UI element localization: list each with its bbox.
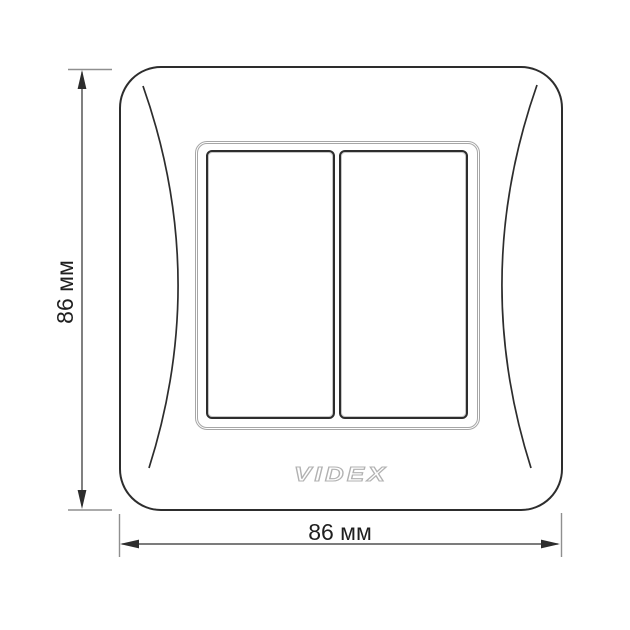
technical-drawing: 86 мм 86 мм VIDEX xyxy=(0,0,630,630)
rocker-buttons xyxy=(206,150,468,419)
height-dimension-label: 86 мм xyxy=(52,260,78,324)
height-dimension-arrow-down xyxy=(78,490,87,509)
width-dimension-label: 86 мм xyxy=(308,519,372,545)
height-dimension-arrow-up xyxy=(78,70,87,89)
width-dimension-arrow-left xyxy=(120,540,139,549)
rocker-button-right xyxy=(339,150,468,419)
width-dimension-arrow-right xyxy=(541,540,560,549)
rocker-button-left xyxy=(206,150,335,419)
